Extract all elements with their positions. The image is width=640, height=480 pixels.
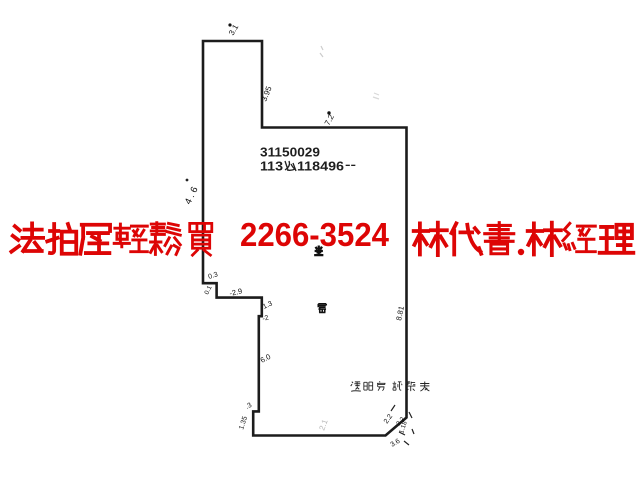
svg-text:--: --: [345, 159, 357, 171]
svg-text:31150029: 31150029: [260, 146, 320, 160]
svg-text:113: 113: [260, 160, 283, 174]
svg-text:118496: 118496: [297, 160, 344, 174]
